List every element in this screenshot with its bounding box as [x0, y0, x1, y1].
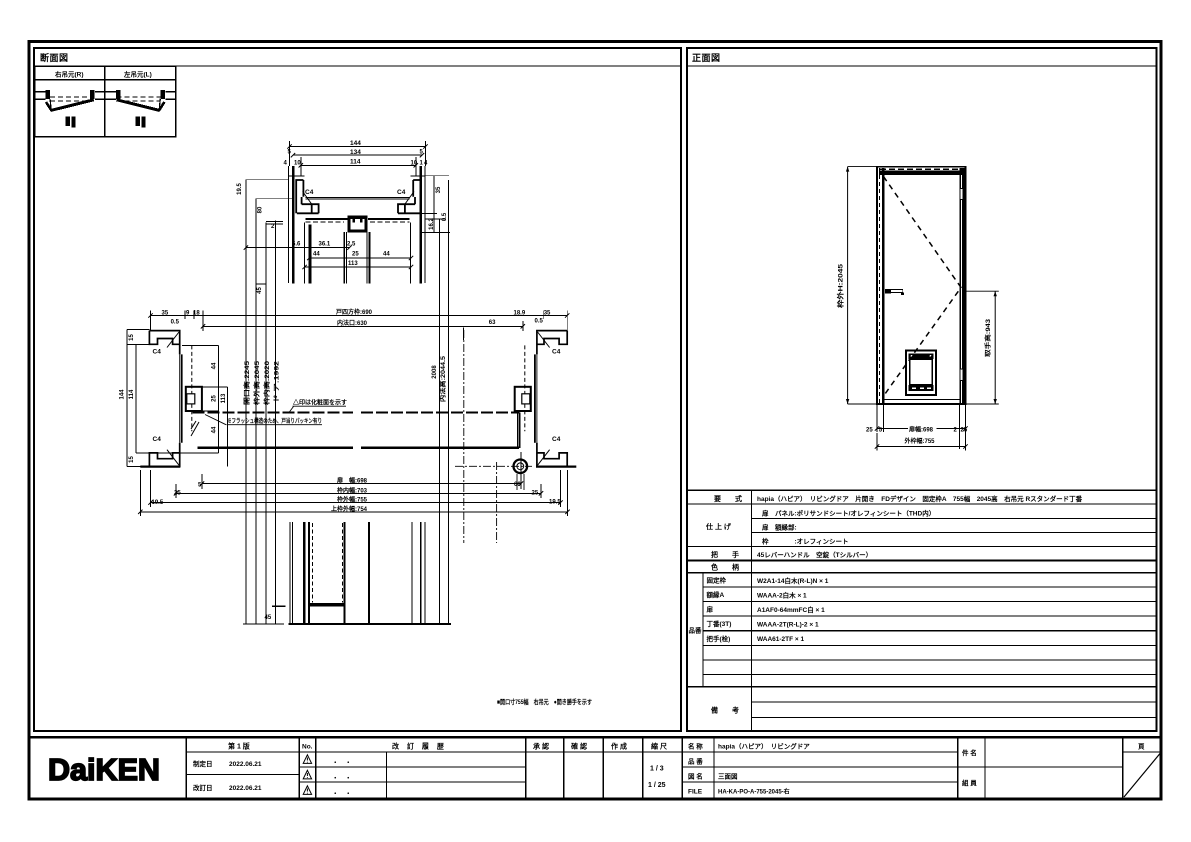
svg-text:取手高:943: 取手高:943 [984, 318, 992, 357]
svg-text:△印は化粧面を示す: △印は化粧面を示す [292, 399, 347, 407]
svg-text:枠外幅:755: 枠外幅:755 [337, 496, 368, 504]
svg-text:額縁A: 額縁A [706, 590, 725, 599]
svg-text:2022.06.21: 2022.06.21 [229, 785, 262, 792]
svg-text:18.9: 18.9 [514, 310, 526, 316]
svg-text:45: 45 [257, 287, 263, 294]
svg-text:WAAA-2白木 × 1: WAAA-2白木 × 1 [757, 591, 807, 600]
svg-text:・ ・: ・ ・ [332, 790, 352, 797]
svg-text:改 訂 履 歴: 改 訂 履 歴 [392, 742, 447, 751]
svg-text:品番: 品番 [689, 626, 703, 635]
svg-text:10: 10 [411, 161, 418, 167]
svg-text:44: 44 [212, 426, 218, 433]
svg-text:扉: 扉 [707, 605, 714, 614]
svg-text:頁: 頁 [1138, 743, 1145, 751]
svg-text:確 認: 確 認 [571, 742, 587, 751]
svg-text:縮 尺: 縮 尺 [651, 742, 667, 751]
svg-text:要 式: 要 式 [714, 494, 742, 503]
svg-text:件 名: 件 名 [962, 748, 977, 757]
svg-text:作 成: 作 成 [611, 742, 627, 751]
svg-text:※フラッシュ構造のため、戸当りパッキン有り: ※フラッシュ構造のため、戸当りパッキン有り [227, 417, 322, 425]
svg-text:把 手: 把 手 [711, 550, 739, 559]
svg-text:品 番: 品 番 [688, 757, 703, 766]
svg-text:戸四方枠:690: 戸四方枠:690 [336, 308, 373, 316]
svg-text:1 / 3: 1 / 3 [650, 766, 664, 773]
svg-text:FILE: FILE [688, 789, 703, 796]
svg-text:80: 80 [258, 206, 264, 213]
svg-text:仕 上 げ: 仕 上 げ [705, 522, 732, 531]
svg-text:0.5: 0.5 [171, 320, 180, 326]
svg-text:15: 15 [129, 456, 135, 463]
svg-text:HA-KA-PO-A-755-2045-右: HA-KA-PO-A-755-2045-右 [718, 788, 790, 796]
svg-text:63: 63 [489, 320, 496, 326]
svg-text:35: 35 [162, 310, 169, 316]
svg-text:144: 144 [120, 389, 126, 400]
svg-text:外枠幅:755: 外枠幅:755 [904, 437, 936, 445]
svg-text:・ ・: ・ ・ [332, 775, 352, 782]
svg-text:ド ア:1992: ド ア:1992 [274, 360, 281, 403]
svg-text:0.5: 0.5 [535, 319, 544, 325]
svg-text:左吊元(L): 左吊元(L) [123, 70, 152, 79]
svg-text:C4: C4 [153, 436, 162, 443]
svg-text:45レバーハンドル 空錠（Tシルバー）: 45レバーハンドル 空錠（Tシルバー） [757, 550, 872, 559]
svg-text:16.2: 16.2 [429, 218, 435, 230]
svg-text:113: 113 [348, 261, 358, 267]
svg-text:枠 :オレフィンシート: 枠 :オレフィンシート [762, 537, 849, 546]
svg-text:25: 25 [532, 490, 539, 496]
svg-text:名 称: 名 称 [688, 742, 703, 751]
svg-text:0.5: 0.5 [442, 212, 448, 221]
svg-text:19.5: 19.5 [152, 500, 164, 506]
svg-text:枠外高:2045: 枠外高:2045 [253, 360, 261, 405]
svg-text:19.5: 19.5 [549, 499, 561, 505]
svg-text:114: 114 [350, 159, 361, 166]
svg-text:36.1: 36.1 [319, 242, 331, 248]
svg-text:断面図: 断面図 [40, 52, 69, 63]
svg-text:色 柄: 色 柄 [711, 563, 739, 572]
svg-text:・ ・: ・ ・ [332, 760, 352, 767]
svg-text:固定枠: 固定枠 [707, 576, 727, 585]
svg-text:扉幅:698: 扉幅:698 [908, 425, 934, 433]
svg-text:組 員: 組 員 [962, 778, 977, 787]
svg-text:内法高:2044.5: 内法高:2044.5 [439, 355, 447, 402]
svg-text:C4: C4 [153, 349, 162, 356]
svg-text:枠内幅:703: 枠内幅:703 [337, 486, 368, 494]
svg-text:hapia（ハピア） リビングドア 片開き FDデザイン 固: hapia（ハピア） リビングドア 片開き FDデザイン 固定枠A 755幅 2… [757, 494, 1083, 503]
svg-text:114: 114 [129, 389, 135, 399]
svg-text:丁番(3T): 丁番(3T) [707, 619, 732, 628]
svg-text:扉 パネル:ポリサンドシート/オレフィンシート（THD内）: 扉 パネル:ポリサンドシート/オレフィンシート（THD内） [762, 508, 935, 517]
svg-text:開口高:2245: 開口高:2245 [243, 360, 251, 405]
svg-text:2008: 2008 [432, 365, 438, 379]
svg-text:19.5: 19.5 [237, 183, 243, 195]
svg-text:113: 113 [221, 393, 227, 403]
svg-text:44: 44 [212, 362, 218, 369]
svg-text:25: 25 [212, 395, 218, 402]
svg-text:2022.06.21: 2022.06.21 [229, 761, 262, 768]
svg-text:25: 25 [352, 252, 359, 258]
svg-text:扉 額縁部:: 扉 額縁部: [762, 522, 797, 531]
svg-text:正面図: 正面図 [692, 53, 721, 63]
svg-text:承 認: 承 認 [533, 742, 549, 751]
svg-text:■開口寸755幅 右吊元 ●開き勝手を示す: ■開口寸755幅 右吊元 ●開き勝手を示す [497, 697, 592, 706]
svg-text:A1AF0-64mmFC白 × 1: A1AF0-64mmFC白 × 1 [757, 605, 825, 614]
svg-text:第 1 版: 第 1 版 [228, 742, 250, 751]
svg-text:枠内高:2020: 枠内高:2020 [263, 360, 271, 405]
svg-text:C4: C4 [552, 436, 561, 443]
svg-text:15: 15 [129, 334, 135, 341]
svg-text:WAAA-2T(R-L)-2 × 1: WAAA-2T(R-L)-2 × 1 [757, 622, 819, 629]
svg-text:144: 144 [350, 140, 361, 147]
svg-text:右吊元(R): 右吊元(R) [54, 70, 84, 79]
svg-text:制定日: 制定日 [193, 759, 213, 768]
svg-text:改訂日: 改訂日 [193, 783, 213, 792]
svg-text:2.5: 2.5 [347, 242, 356, 248]
svg-text:35: 35 [544, 310, 551, 316]
svg-text:内法口:630: 内法口:630 [337, 319, 368, 327]
svg-text:35: 35 [436, 186, 442, 193]
svg-text:45: 45 [265, 615, 272, 621]
svg-text:W2A1-14白木(R-L)N × 1: W2A1-14白木(R-L)N × 1 [757, 576, 829, 585]
svg-text:1 / 25: 1 / 25 [648, 782, 666, 789]
svg-text:図 名: 図 名 [688, 772, 703, 781]
svg-text:扉 幅:698: 扉 幅:698 [336, 477, 368, 485]
svg-text:三面図: 三面図 [718, 772, 738, 781]
svg-text:上枠外幅:754: 上枠外幅:754 [331, 505, 368, 513]
svg-text:枠外H:2045: 枠外H:2045 [836, 264, 845, 308]
svg-text:把手(栓): 把手(栓) [707, 634, 731, 643]
svg-text:44: 44 [313, 252, 320, 258]
svg-text:5.6: 5.6 [292, 242, 301, 248]
svg-text:25: 25 [866, 427, 873, 433]
svg-text:C4: C4 [397, 189, 406, 196]
svg-text:No.: No. [302, 744, 313, 751]
svg-text:WAA61-2TF × 1: WAA61-2TF × 1 [757, 636, 805, 643]
svg-text:44: 44 [383, 252, 390, 258]
svg-text:C4: C4 [552, 349, 561, 356]
svg-text:C4: C4 [305, 189, 314, 196]
svg-text:hapia（ハピア） リビングドア: hapia（ハピア） リビングドア [718, 742, 810, 751]
svg-text:備 考: 備 考 [711, 706, 739, 715]
svg-text:DaiKEN: DaiKEN [48, 752, 160, 787]
